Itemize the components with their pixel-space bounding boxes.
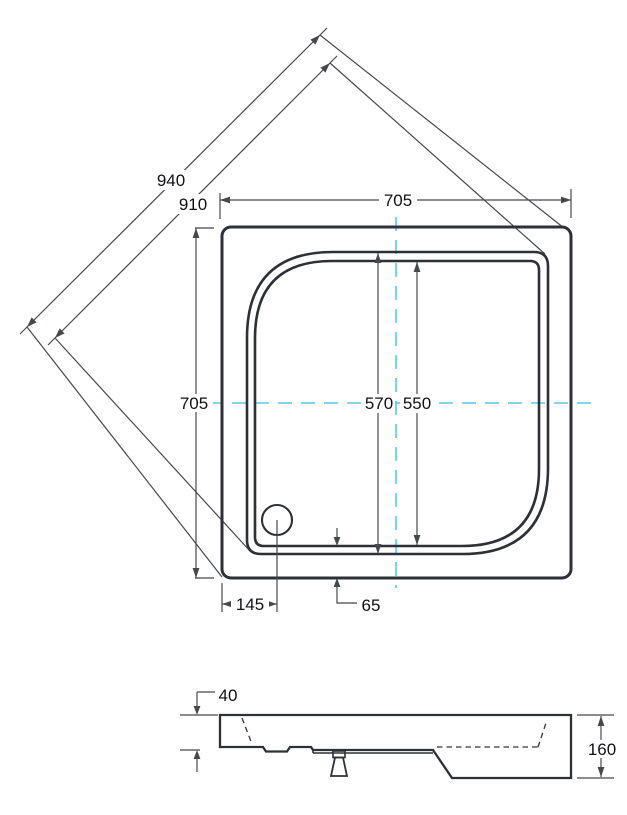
hidden-basin-slope-left — [242, 718, 252, 744]
drain-outlet — [331, 758, 347, 777]
dim-label-height-left: 705 — [180, 394, 208, 413]
side-view — [180, 692, 614, 778]
ext-line-940-bottom — [27, 327, 222, 577]
leader-line — [337, 587, 357, 603]
dim-label-diagonal-outer: 940 — [157, 171, 185, 190]
technical-drawing-canvas: 940 910 705 705 570 550 145 65 40 160 — [0, 0, 627, 815]
dim-rim-gap — [334, 528, 357, 603]
dim-label-rim-gap: 65 — [362, 596, 381, 615]
dim-diagonal-inner — [48, 56, 545, 551]
technical-drawing-page: 940 910 705 705 570 550 145 65 40 160 — [0, 0, 627, 815]
plan-view — [20, 28, 592, 612]
arrowhead-down — [334, 537, 341, 546]
arrowhead-down — [194, 706, 201, 715]
drain-flange — [333, 751, 345, 758]
dim-label-diagonal-inner: 910 — [179, 195, 207, 214]
arrowhead-up — [194, 750, 201, 759]
dim-label-rim-height: 40 — [219, 686, 238, 705]
ext-line-940-top — [320, 35, 564, 228]
ext-line-910-top — [330, 63, 545, 254]
hidden-basin-slope-right — [538, 723, 546, 747]
dim-label-width-top: 705 — [384, 191, 412, 210]
dim-label-basin-outer: 570 — [365, 394, 393, 413]
dim-label-total-height: 160 — [588, 740, 616, 759]
dim-diagonal-outer — [20, 28, 564, 577]
dim-label-drain-offset: 145 — [236, 595, 264, 614]
dim-label-basin-inner: 550 — [403, 394, 431, 413]
dim-rim-height — [180, 692, 218, 772]
